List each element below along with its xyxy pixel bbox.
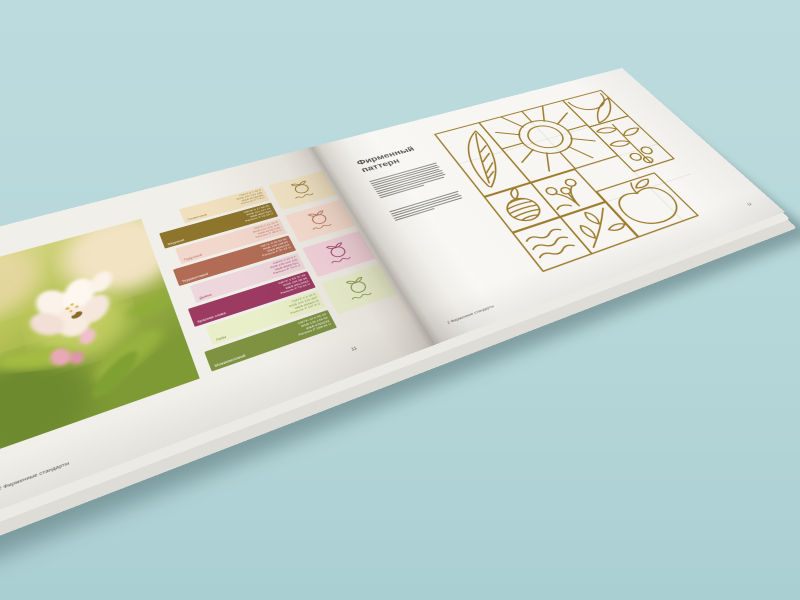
apple-blossom-photo bbox=[0, 219, 200, 455]
mockup-scene: Сливочный CMYK 0 7 24 0RGB 240 224 189 W… bbox=[0, 0, 800, 600]
brand-logo-icon bbox=[319, 239, 360, 267]
brand-pattern bbox=[434, 90, 726, 273]
brand-logo-icon bbox=[284, 178, 322, 202]
swatch-codes: CMYK 0 39 52 30RGB 178 108 85 WEB #B26C5… bbox=[258, 238, 292, 258]
page-number: 11 bbox=[350, 345, 358, 351]
swatch-name: Дымка bbox=[199, 293, 212, 300]
running-footer: 2 Фирменные стандарты bbox=[446, 304, 495, 325]
running-footer: 2 Фирменные стандарты bbox=[0, 460, 70, 492]
page-number: 12 bbox=[746, 202, 753, 206]
swatch-name: Лайм bbox=[215, 336, 226, 343]
body-paragraph bbox=[389, 191, 466, 223]
brand-logo-icon bbox=[300, 208, 339, 234]
swatch-codes: CMYK 0 11 15 5RGB 242 215 205 WEB #F2D7C… bbox=[251, 221, 283, 239]
swatch-codes: CMYK 0 7 24 0RGB 240 224 189 WEB #F0E0BD… bbox=[235, 189, 265, 206]
swatch-codes: CMYK 14 0 55 43RGB 126 146 66 WEB #7E924… bbox=[293, 313, 332, 337]
leaf-tile bbox=[435, 123, 530, 197]
swatch-name: Можжевеловый bbox=[214, 354, 246, 368]
swatch-name: Пудровый bbox=[184, 254, 203, 262]
swatch-name: Медовый bbox=[167, 239, 184, 246]
swatch-codes: CMYK 3 0 16 6RGB 233 239 200 WEB #E9EFC8… bbox=[285, 293, 321, 316]
brand-logo-icon bbox=[338, 274, 381, 305]
honey-ball-tile bbox=[485, 183, 560, 232]
swatch-codes: CMYK 0 10 3 7RGB 238 215 220 WEB #EED7DC… bbox=[268, 256, 301, 276]
berry-sprig-tile bbox=[531, 169, 605, 216]
swatch-codes: CMYK 0 63 37 39RGB 156 58 98 WEB #9C3A62… bbox=[276, 274, 311, 296]
